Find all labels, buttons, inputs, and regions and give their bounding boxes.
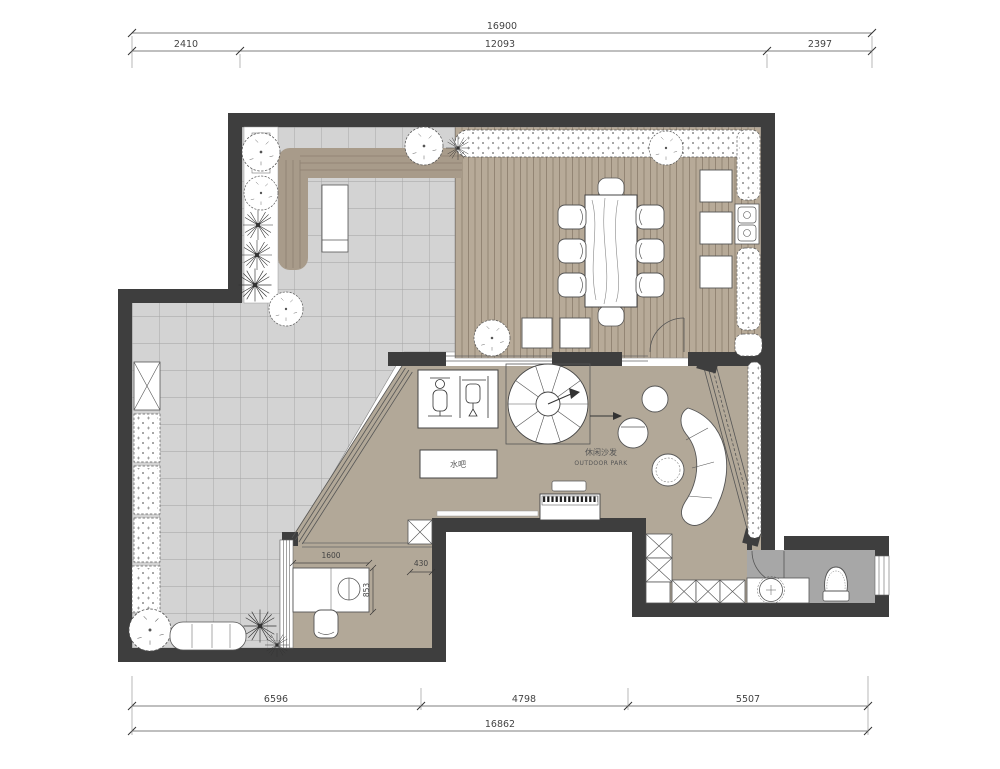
wall-notch-right <box>632 518 646 617</box>
dim-desk-depth: 853 <box>362 583 371 598</box>
floor-plan-drawing: 16900 2410 12093 2397 <box>0 0 1000 769</box>
wall-right <box>761 113 775 550</box>
wall-jog <box>118 289 242 303</box>
wall-left-upper <box>228 113 242 303</box>
round-ottoman <box>642 386 668 412</box>
desk-chair <box>314 610 338 638</box>
dining-chair <box>636 273 664 297</box>
dim-top-seg3: 2397 <box>808 39 832 50</box>
bath-window <box>875 556 889 595</box>
dim-top-seg1: 2410 <box>174 39 198 50</box>
tree-icon <box>269 292 303 326</box>
water-bar-label: 水吧 <box>450 459 466 469</box>
shrub-icon <box>446 136 470 160</box>
shrub-icon <box>239 269 272 302</box>
dim-bottom-seg3: 5507 <box>736 694 760 705</box>
dimension-top: 16900 2410 12093 2397 <box>128 21 876 68</box>
dining-chair <box>558 205 586 229</box>
dim-bottom-seg2: 4798 <box>512 694 536 705</box>
wall-notch-top <box>432 518 646 532</box>
dim-bottom-total: 16862 <box>485 719 515 730</box>
gym-equipment <box>418 370 498 428</box>
water-bar-counter: 水吧 <box>420 450 497 478</box>
dining-chair <box>558 239 586 263</box>
planter-column-left <box>132 414 160 612</box>
deck-cabinet-column <box>700 170 732 288</box>
dimension-bottom: 6596 4798 5507 16862 <box>128 676 872 735</box>
wall-bath-top-b <box>784 536 889 550</box>
shrub-icon <box>244 610 277 643</box>
round-table <box>652 454 684 486</box>
shrub-icon <box>265 633 289 657</box>
dining-chair <box>558 273 586 297</box>
dim-desk-width: 1600 <box>321 551 340 560</box>
shrub-icon <box>242 240 272 270</box>
dining-table <box>585 178 637 326</box>
dim-cabinet-depth: 430 <box>414 559 429 568</box>
terrace-window <box>280 540 293 648</box>
wall-bath-bottom <box>632 603 889 617</box>
shelf-threshold <box>437 511 538 516</box>
lounge-label-cn: 休闲沙发 <box>585 447 617 457</box>
dim-top-seg2: 12093 <box>485 39 515 50</box>
wall-bath-right-a <box>875 536 889 556</box>
floor-plan-page: 16900 2410 12093 2397 <box>0 0 1000 769</box>
study-desk <box>293 568 369 612</box>
outdoor-sink <box>735 204 759 244</box>
dining-chair <box>636 205 664 229</box>
tree-icon <box>242 133 280 171</box>
shrub-icon <box>243 210 273 240</box>
wall-top <box>228 113 775 127</box>
dim-bottom-seg1: 6596 <box>264 694 288 705</box>
dim-top-total: 16900 <box>487 21 517 32</box>
dining-chair <box>636 239 664 263</box>
hedge-band-top <box>455 130 756 157</box>
tree-icon <box>474 320 510 356</box>
sun-lounger-top <box>322 185 348 252</box>
tree-icon <box>405 127 443 165</box>
tree-icon <box>129 609 171 651</box>
wall-notch-left <box>432 518 446 662</box>
tree-icon <box>649 131 683 165</box>
wall-left-lower <box>118 289 132 662</box>
wall-deck-seg1 <box>388 352 446 366</box>
bottom-lounger <box>170 622 246 650</box>
armchair <box>618 418 648 448</box>
lounge-label-en: OUTDOOR PARK <box>574 460 628 467</box>
tree-icon <box>244 176 278 210</box>
